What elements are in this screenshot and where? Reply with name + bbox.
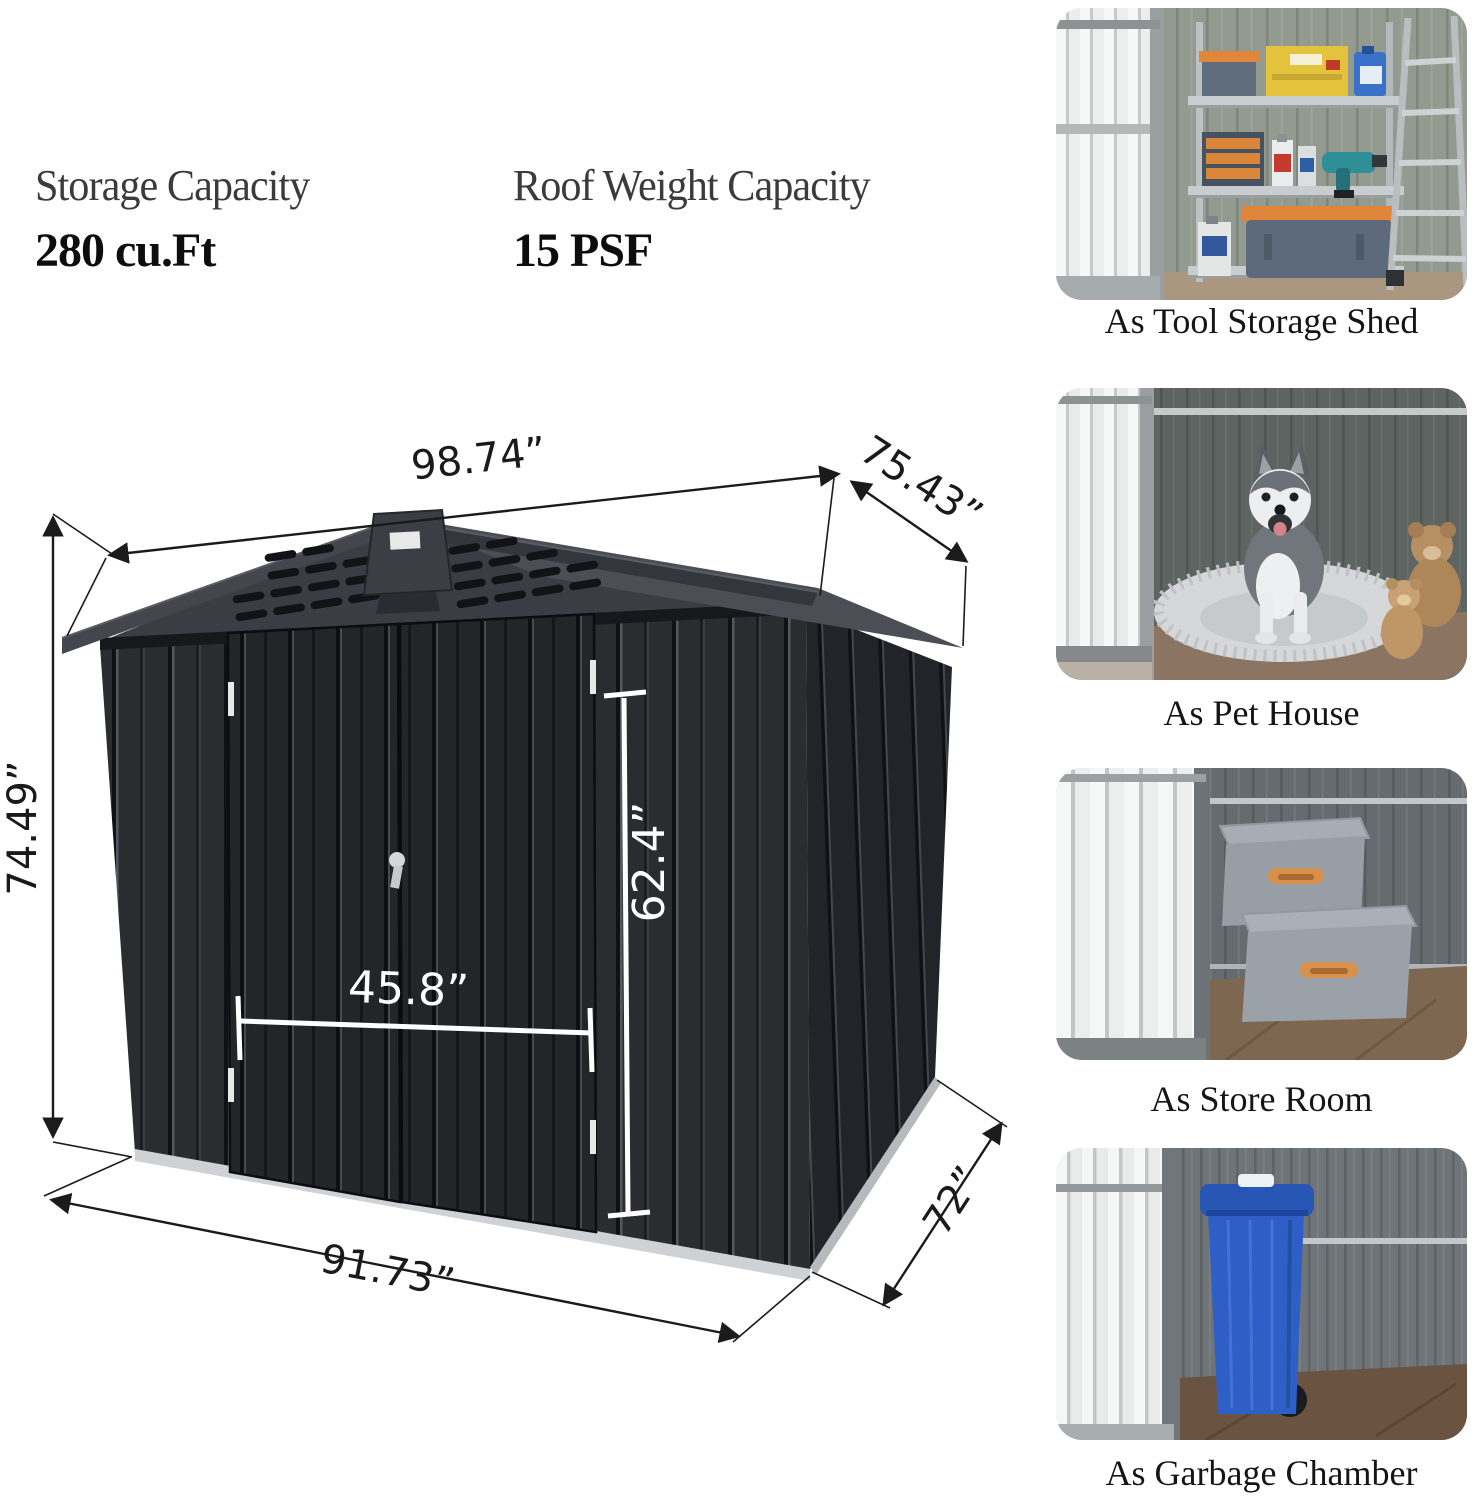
right-door <box>400 614 596 1232</box>
ext-line <box>963 566 966 646</box>
door-hinge <box>228 1068 234 1102</box>
ext-line <box>44 1157 131 1196</box>
ext-line <box>53 514 112 554</box>
roof-capacity-value: 15 PSF <box>513 223 885 278</box>
usecase-photo-tool-storage-shed <box>1056 8 1467 300</box>
dim-tick <box>590 1008 592 1072</box>
usecase-photo-garbage-chamber <box>1056 1148 1467 1440</box>
storage-capacity-value: 280 cu.Ft <box>35 223 321 278</box>
usecase-caption-garbage-chamber: As Garbage Chamber <box>1056 1452 1467 1494</box>
dim-label-top-depth: 75.43” <box>852 427 990 539</box>
ext-line <box>820 478 834 596</box>
usecase-photo-store-room <box>1056 768 1467 1060</box>
door-hinge <box>590 1120 596 1154</box>
wall-rail <box>1152 408 1467 415</box>
spec-roof-weight-capacity: Roof Weight Capacity 15 PSF <box>513 160 885 278</box>
roof-capacity-label: Roof Weight Capacity <box>513 160 870 211</box>
usecase-photo-pet-house <box>1056 388 1467 680</box>
ladder-foot <box>1386 270 1404 286</box>
usecase-caption-tool-storage-shed: As Tool Storage Shed <box>1056 300 1467 342</box>
shed-double-doors <box>228 614 596 1232</box>
dim-label-base-depth: 72” <box>914 1158 992 1243</box>
dim-tick <box>238 996 240 1060</box>
ext-line <box>733 1276 810 1342</box>
garbage-chamber-scene <box>1056 1148 1467 1440</box>
product-infographic: Storage Capacity 280 cu.Ft Roof Weight C… <box>0 0 1475 1500</box>
fabric-storage-box-lower <box>1242 906 1416 1022</box>
ext-line <box>812 1272 890 1308</box>
shed-dimension-diagram: 98.74” 75.43” 74.49” 62.4” 45.8” 91.7 <box>0 420 1040 1500</box>
dim-label-door-width: 45.8” <box>347 962 469 1017</box>
wall-rail-top <box>1206 798 1467 804</box>
open-door-left <box>1056 388 1154 680</box>
ext-line <box>53 1142 132 1157</box>
tool-storage-scene <box>1056 8 1467 300</box>
open-door-left <box>1056 8 1164 300</box>
ext-line <box>937 1080 1007 1127</box>
pet-house-scene <box>1056 388 1467 680</box>
left-door <box>228 624 400 1202</box>
spec-storage-capacity: Storage Capacity 280 cu.Ft <box>35 160 321 278</box>
store-room-scene <box>1056 768 1467 1060</box>
shelf-items-top <box>1199 46 1386 96</box>
shed-illustration <box>62 510 963 1281</box>
dim-label-height: 74.49” <box>0 760 46 895</box>
door-center-seam <box>399 624 401 1202</box>
dim-label-door-height: 62.4” <box>624 802 675 923</box>
vent-box-label <box>390 531 421 550</box>
dim-label-top-width: 98.74” <box>409 429 549 490</box>
door-hinge <box>228 682 234 716</box>
wheelie-bin <box>1200 1174 1314 1417</box>
open-door-left <box>1056 1148 1180 1440</box>
usecase-caption-pet-house: As Pet House <box>1056 692 1467 734</box>
door-hinge <box>590 660 596 694</box>
dim-label-base-width: 91.73” <box>317 1236 459 1307</box>
usecase-caption-store-room: As Store Room <box>1056 1078 1467 1120</box>
open-door-left <box>1056 768 1210 1060</box>
storage-capacity-label: Storage Capacity <box>35 160 309 211</box>
